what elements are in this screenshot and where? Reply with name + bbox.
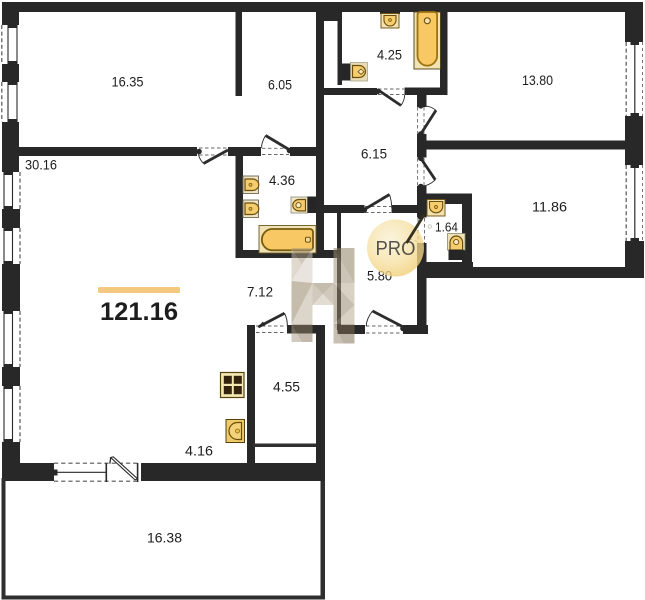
svg-text:6.05: 6.05 [268, 77, 292, 93]
svg-text:121.16: 121.16 [100, 298, 178, 326]
svg-text:4.36: 4.36 [269, 172, 295, 188]
svg-text:11.86: 11.86 [532, 199, 567, 215]
svg-text:16.35: 16.35 [112, 74, 144, 90]
svg-text:4.16: 4.16 [185, 443, 213, 459]
svg-text:30.16: 30.16 [25, 157, 57, 173]
svg-text:13.80: 13.80 [522, 72, 553, 88]
svg-text:6.15: 6.15 [361, 146, 387, 162]
svg-text:1.64: 1.64 [435, 221, 458, 235]
svg-text:16.38: 16.38 [147, 530, 182, 546]
svg-text:4.25: 4.25 [377, 47, 402, 63]
svg-text:4.55: 4.55 [273, 379, 300, 395]
svg-text:7.12: 7.12 [247, 284, 273, 300]
